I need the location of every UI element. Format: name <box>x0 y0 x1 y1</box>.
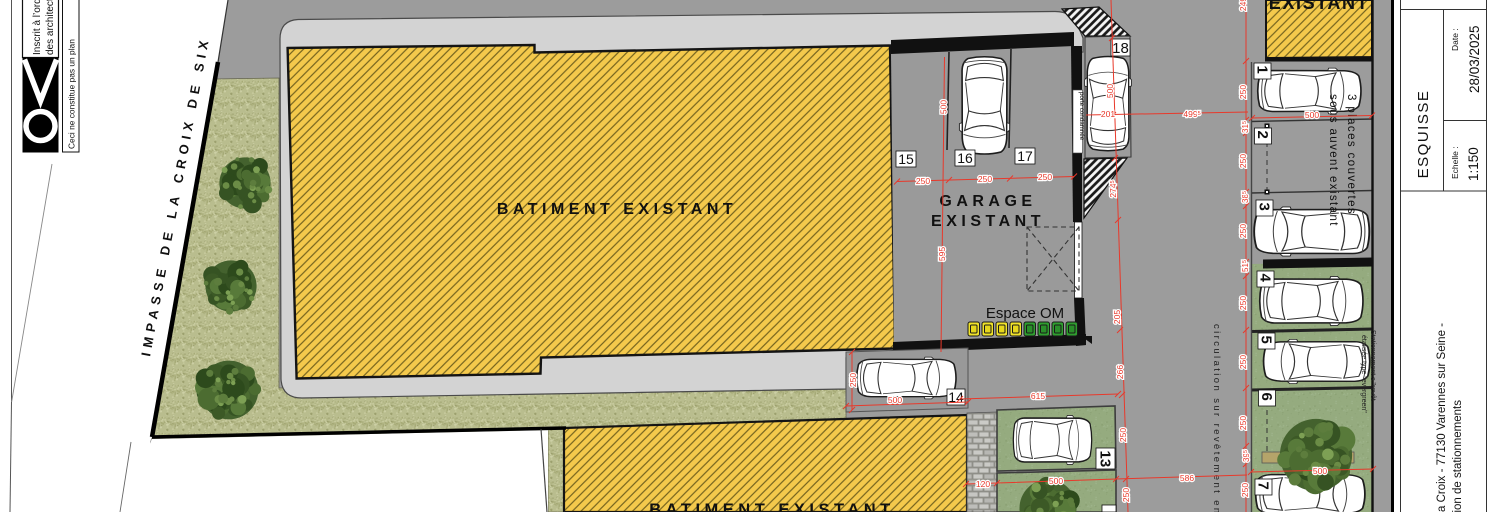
svg-text:2: 2 <box>1254 131 1271 139</box>
svg-text:500: 500 <box>1049 476 1063 486</box>
svg-text:Ceci ne constitue pas un plan: Ceci ne constitue pas un plan <box>67 39 77 149</box>
svg-text:BATIMENT EXISTANT: BATIMENT EXISTANT <box>649 501 894 512</box>
svg-text:16: 16 <box>957 150 973 166</box>
svg-text:250: 250 <box>1238 416 1248 430</box>
svg-text:250: 250 <box>848 373 858 387</box>
svg-text:249: 249 <box>1238 0 1248 11</box>
svg-text:120: 120 <box>976 479 990 489</box>
svg-text:500: 500 <box>1105 84 1115 98</box>
svg-text:28/03/2025: 28/03/2025 <box>1467 25 1482 93</box>
svg-text:ESQUISSE: ESQUISSE <box>1415 90 1432 179</box>
svg-text:250: 250 <box>978 174 992 184</box>
svg-text:étalisée type "evergreen": étalisée type "evergreen" <box>1360 335 1367 413</box>
svg-text:7: 7 <box>1255 482 1272 490</box>
svg-text:porte condamnée: porte condamnée <box>1078 92 1085 141</box>
svg-text:Stationnement s "revêt: Stationnement s "revêt <box>1369 330 1376 401</box>
svg-text:rue de la Croix - 77130 Varenn: rue de la Croix - 77130 Varennes sur Sei… <box>1436 323 1448 512</box>
svg-text:1: 1 <box>1254 66 1271 74</box>
svg-text:266: 266 <box>1115 365 1125 379</box>
svg-text:Echelle :: Echelle : <box>1450 146 1460 179</box>
svg-text:250: 250 <box>1238 296 1248 310</box>
svg-text:3 places couvertes: 3 places couvertes <box>1345 94 1357 215</box>
svg-text:Espace OM: Espace OM <box>986 305 1064 322</box>
svg-text:250: 250 <box>1038 172 1052 182</box>
svg-text:EXISTANT: EXISTANT <box>931 213 1045 230</box>
svg-text:595: 595 <box>937 247 947 261</box>
svg-text:6: 6 <box>1258 393 1275 401</box>
svg-text:Inscrit à l’ordre: Inscrit à l’ordre <box>32 0 43 55</box>
svg-text:250: 250 <box>1238 154 1248 168</box>
svg-text:17: 17 <box>1017 148 1033 164</box>
svg-text:201: 201 <box>1101 109 1115 119</box>
svg-text:250: 250 <box>1121 488 1131 502</box>
svg-text:3: 3 <box>1256 203 1273 211</box>
svg-text:250: 250 <box>1238 224 1248 238</box>
svg-text:GARAGE: GARAGE <box>939 193 1036 210</box>
svg-text:1:150: 1:150 <box>1466 147 1481 181</box>
svg-text:Date :: Date : <box>1450 28 1460 51</box>
svg-text:4: 4 <box>1257 274 1274 283</box>
svg-text:250: 250 <box>1238 355 1248 369</box>
svg-text:250: 250 <box>1238 85 1248 99</box>
svg-text:615: 615 <box>1031 391 1045 401</box>
svg-text:18: 18 <box>1112 40 1129 57</box>
svg-text:586: 586 <box>1180 473 1194 483</box>
svg-text:250: 250 <box>916 176 930 186</box>
svg-text:Création de stationnements: Création de stationnements <box>1452 400 1464 512</box>
svg-text:500: 500 <box>1305 110 1319 120</box>
svg-text:500: 500 <box>1313 466 1327 476</box>
svg-text:BATIMENT EXISTANT: BATIMENT EXISTANT <box>497 201 737 218</box>
svg-text:250: 250 <box>1240 483 1250 497</box>
svg-text:15: 15 <box>898 151 914 167</box>
svg-text:13: 13 <box>1097 451 1114 468</box>
svg-text:des architectes: des architectes <box>45 0 56 55</box>
svg-text:EXISTANT: EXISTANT <box>1269 0 1369 13</box>
svg-text:500: 500 <box>939 100 949 114</box>
svg-text:5: 5 <box>1258 336 1275 344</box>
svg-text:500: 500 <box>888 395 902 405</box>
svg-text:205: 205 <box>1112 310 1122 324</box>
svg-text:250: 250 <box>1118 428 1128 442</box>
svg-text:sous auvent existant: sous auvent existant <box>1327 94 1339 227</box>
svg-text:circulation sur revêtement en: circulation sur revêtement en enrobé <box>1211 324 1222 512</box>
